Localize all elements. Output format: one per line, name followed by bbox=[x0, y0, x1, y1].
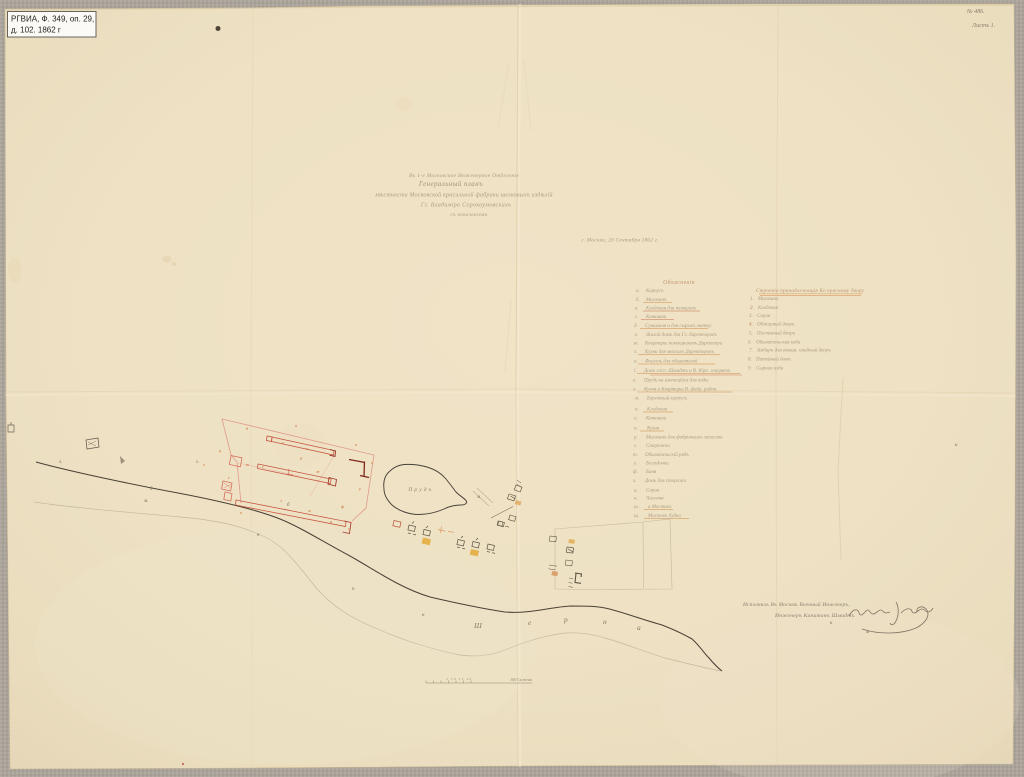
svg-text:Ш: Ш bbox=[473, 621, 483, 630]
svg-text:о: о bbox=[348, 526, 350, 531]
svg-text:Магазинъ: Магазинъ bbox=[757, 297, 779, 302]
svg-text:Кладовая: Кладовая bbox=[757, 306, 779, 311]
svg-text:Исполнялъ Въ Москвѣ Военный Ин: Исполнялъ Въ Москвѣ Военный Инженеръ, bbox=[742, 601, 850, 608]
svg-text:6.: 6. bbox=[748, 341, 752, 346]
svg-text:Постоялый дворъ: Постоялый дворъ bbox=[756, 331, 796, 337]
svg-text:з.: з. bbox=[58, 460, 62, 465]
svg-text:Квартиры помощниковъ Директора: Квартиры помощниковъ Директора bbox=[644, 342, 723, 347]
svg-text:с.: с. bbox=[634, 444, 637, 449]
svg-text:8.: 8. bbox=[748, 358, 752, 363]
svg-text:3.: 3. bbox=[749, 314, 753, 319]
svg-text:т.: т. bbox=[633, 453, 638, 458]
svg-text:д. 102. 1862 г: д. 102. 1862 г bbox=[11, 26, 61, 35]
svg-text:№ 486.: № 486. bbox=[966, 8, 985, 15]
svg-text:х.: х. bbox=[632, 479, 636, 484]
svg-text:Березовый корпусъ: Березовый корпусъ bbox=[646, 396, 688, 402]
svg-text:РГВИА, Ф. 349, оп. 29,: РГВИА, Ф. 349, оп. 29, bbox=[11, 15, 94, 24]
svg-text:Прудъ: Прудъ bbox=[407, 486, 433, 493]
svg-text:ф.: ф. bbox=[633, 470, 638, 475]
svg-text:Обывательская изба: Обывательская изба bbox=[756, 341, 801, 346]
svg-text:н.: н. bbox=[635, 408, 639, 413]
svg-text:Часовня: Часовня bbox=[646, 497, 664, 502]
svg-text:Амбаръ для овощн. хлѣбный двор: Амбаръ для овощн. хлѣбный дворъ bbox=[756, 348, 831, 354]
svg-text:Въ 1-е Московское Инженерное О: Въ 1-е Московское Инженерное Отделеніе bbox=[409, 172, 519, 179]
svg-text:к: к bbox=[306, 446, 308, 451]
svg-text:2.: 2. bbox=[750, 306, 754, 311]
svg-text:т: т bbox=[246, 462, 249, 467]
svg-text:Строенія принадлежащія Ко крас: Строенія принадлежащія Ко красному двору bbox=[756, 287, 865, 294]
svg-text:м.: м. bbox=[143, 499, 148, 504]
svg-text:м: м bbox=[307, 508, 311, 513]
svg-text:а.: а. bbox=[636, 289, 640, 294]
svg-text:Домъ для сторожа: Домъ для сторожа bbox=[644, 479, 687, 484]
svg-text:л.: л. bbox=[632, 388, 636, 393]
svg-text:и.: и. bbox=[634, 360, 638, 365]
svg-text:Обжорный дворъ: Обжорный дворъ bbox=[757, 322, 795, 328]
svg-text:а: а bbox=[295, 423, 297, 428]
svg-text:і.: і. bbox=[634, 369, 637, 374]
svg-text:Баня: Баня bbox=[645, 470, 657, 475]
svg-text:г.: г. bbox=[635, 315, 638, 320]
svg-text:мѣстности Московской красильно: мѣстности Московской красильной фабрики … bbox=[374, 192, 552, 199]
svg-text:Сырная изба: Сырная изба bbox=[756, 367, 784, 372]
svg-text:х: х bbox=[202, 462, 205, 467]
svg-text:д: д bbox=[300, 456, 302, 461]
svg-text:Конюшни: Конюшни bbox=[645, 417, 667, 422]
svg-text:г.: г. bbox=[196, 460, 199, 465]
svg-text:ц: ц bbox=[219, 448, 221, 453]
svg-text:Корпусъ: Корпусъ bbox=[645, 289, 664, 294]
svg-text:к.: к. bbox=[633, 379, 637, 384]
svg-text:у: у bbox=[358, 486, 361, 491]
svg-text:Сторожка: Сторожка bbox=[646, 444, 670, 449]
svg-text:Генеральный планъ: Генеральный планъ bbox=[418, 180, 483, 188]
svg-text:1.: 1. bbox=[750, 297, 754, 302]
svg-text:ж: ж bbox=[316, 469, 320, 474]
svg-text:ф: ф bbox=[341, 504, 344, 509]
svg-text:Жилой домъ для Гг. директоровъ: Жилой домъ для Гг. директоровъ bbox=[645, 332, 717, 338]
svg-text:п.: п. bbox=[634, 427, 638, 432]
svg-text:н: н bbox=[603, 617, 607, 626]
svg-text:щ.: щ. bbox=[634, 514, 639, 519]
svg-text:Обывательскій рядъ: Обывательскій рядъ bbox=[645, 452, 689, 458]
svg-text:е: е bbox=[262, 464, 264, 469]
svg-text:ж.: ж. bbox=[633, 342, 639, 347]
svg-text:м.: м. bbox=[634, 397, 639, 402]
svg-text:с: с bbox=[228, 475, 230, 480]
svg-text:н: н bbox=[330, 519, 332, 524]
svg-text:и: и bbox=[282, 440, 284, 445]
svg-text:р: р bbox=[563, 615, 568, 624]
svg-text:съ показаніемъ: съ показаніемъ bbox=[450, 212, 487, 218]
svg-text:у.: у. bbox=[633, 462, 637, 467]
svg-text:б.: б. bbox=[636, 298, 640, 303]
svg-text:Инженеръ Капитанъ Шмидтъ: Инженеръ Капитанъ Шмидтъ bbox=[774, 612, 855, 619]
svg-text:ч.: ч. bbox=[634, 497, 638, 502]
svg-text:р.: р. bbox=[633, 436, 638, 441]
svg-text:л: л bbox=[279, 498, 282, 503]
svg-text:Сараи: Сараи bbox=[646, 489, 660, 494]
svg-text:Бесѣдочки: Бесѣдочки bbox=[645, 462, 669, 467]
svg-text:о.: о. bbox=[634, 417, 638, 422]
svg-text:5 10 15 20: 5 10 15 20 bbox=[446, 677, 472, 681]
svg-text:100 Саженъ: 100 Саженъ bbox=[510, 677, 533, 682]
svg-text:4.: 4. bbox=[749, 323, 753, 328]
svg-text:п: п bbox=[240, 510, 242, 515]
svg-text:д.: д. bbox=[634, 324, 638, 329]
svg-text:в.: в. bbox=[635, 307, 638, 312]
svg-text:Объясненія: Объясненія bbox=[663, 279, 695, 286]
svg-text:а: а bbox=[637, 623, 641, 632]
svg-text:Питейный домъ: Питейный домъ bbox=[755, 357, 791, 363]
svg-text:е.: е. bbox=[635, 333, 638, 338]
svg-text:в: в bbox=[355, 442, 357, 447]
svg-text:Листъ 1.: Листъ 1. bbox=[971, 23, 995, 29]
svg-text:Гг. Владиміра Сорокоумовскихъ: Гг. Владиміра Сорокоумовскихъ bbox=[420, 202, 511, 209]
svg-text:5.: 5. bbox=[749, 332, 753, 337]
svg-text:г. Москва, 20 Сентября 1862 г.: г. Москва, 20 Сентября 1862 г. bbox=[581, 237, 658, 244]
svg-text:з.: з. bbox=[633, 350, 637, 355]
svg-text:Прудъ на имеющійся для воды: Прудъ на имеющійся для воды bbox=[643, 378, 709, 384]
svg-text:9.: 9. bbox=[748, 367, 752, 372]
svg-text:Магазинъ для фабричныхъ запасо: Магазинъ для фабричныхъ запасовъ bbox=[645, 436, 723, 441]
svg-text:Сараи: Сараи bbox=[757, 314, 771, 319]
svg-text:ш.: ш. bbox=[634, 505, 639, 510]
svg-text:ц.: ц. bbox=[634, 489, 638, 494]
svg-text:Флигель для обывателей: Флигель для обывателей bbox=[645, 359, 698, 365]
svg-text:7.: 7. bbox=[749, 349, 753, 354]
